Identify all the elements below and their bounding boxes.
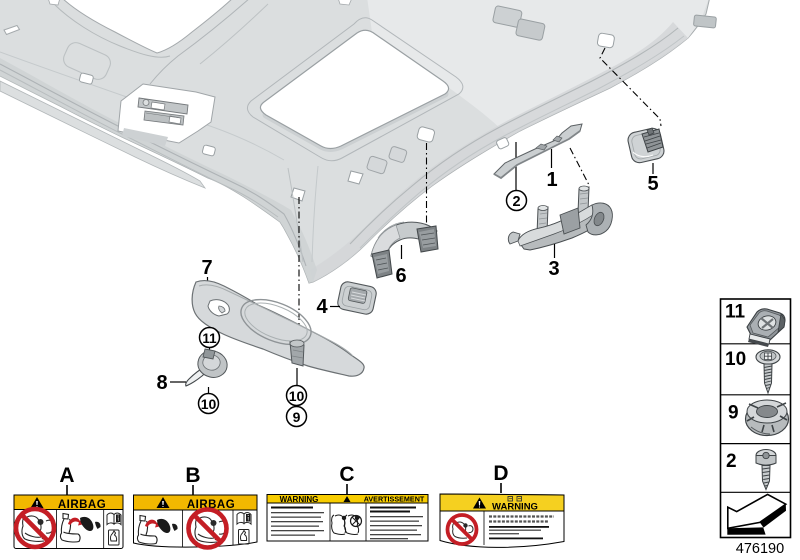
- svg-text:1: 1: [546, 169, 557, 191]
- svg-text:WARNING: WARNING: [280, 495, 319, 504]
- svg-text:A: A: [59, 464, 74, 487]
- svg-text:2: 2: [512, 194, 520, 210]
- svg-text:2: 2: [726, 451, 737, 472]
- svg-text:10: 10: [289, 388, 305, 404]
- svg-text:11: 11: [725, 302, 746, 323]
- svg-text:7: 7: [201, 257, 212, 279]
- svg-text:476190: 476190: [736, 541, 784, 557]
- svg-text:4: 4: [316, 296, 328, 318]
- svg-text:C: C: [339, 463, 354, 486]
- svg-text:5: 5: [647, 173, 658, 195]
- svg-text:6: 6: [395, 265, 406, 287]
- svg-text:3: 3: [548, 258, 559, 280]
- svg-text:8: 8: [156, 372, 167, 394]
- svg-text:9: 9: [293, 409, 301, 425]
- svg-text:D: D: [493, 462, 508, 485]
- svg-text:10: 10: [725, 349, 746, 370]
- svg-text:10: 10: [201, 396, 217, 412]
- svg-text:AIRBAG: AIRBAG: [58, 499, 106, 511]
- svg-text:AVERTISSEMENT: AVERTISSEMENT: [364, 495, 425, 504]
- svg-text:B: B: [185, 464, 200, 487]
- svg-text:WARNING: WARNING: [492, 502, 538, 513]
- svg-text:11: 11: [202, 331, 217, 346]
- svg-text:9: 9: [728, 403, 739, 424]
